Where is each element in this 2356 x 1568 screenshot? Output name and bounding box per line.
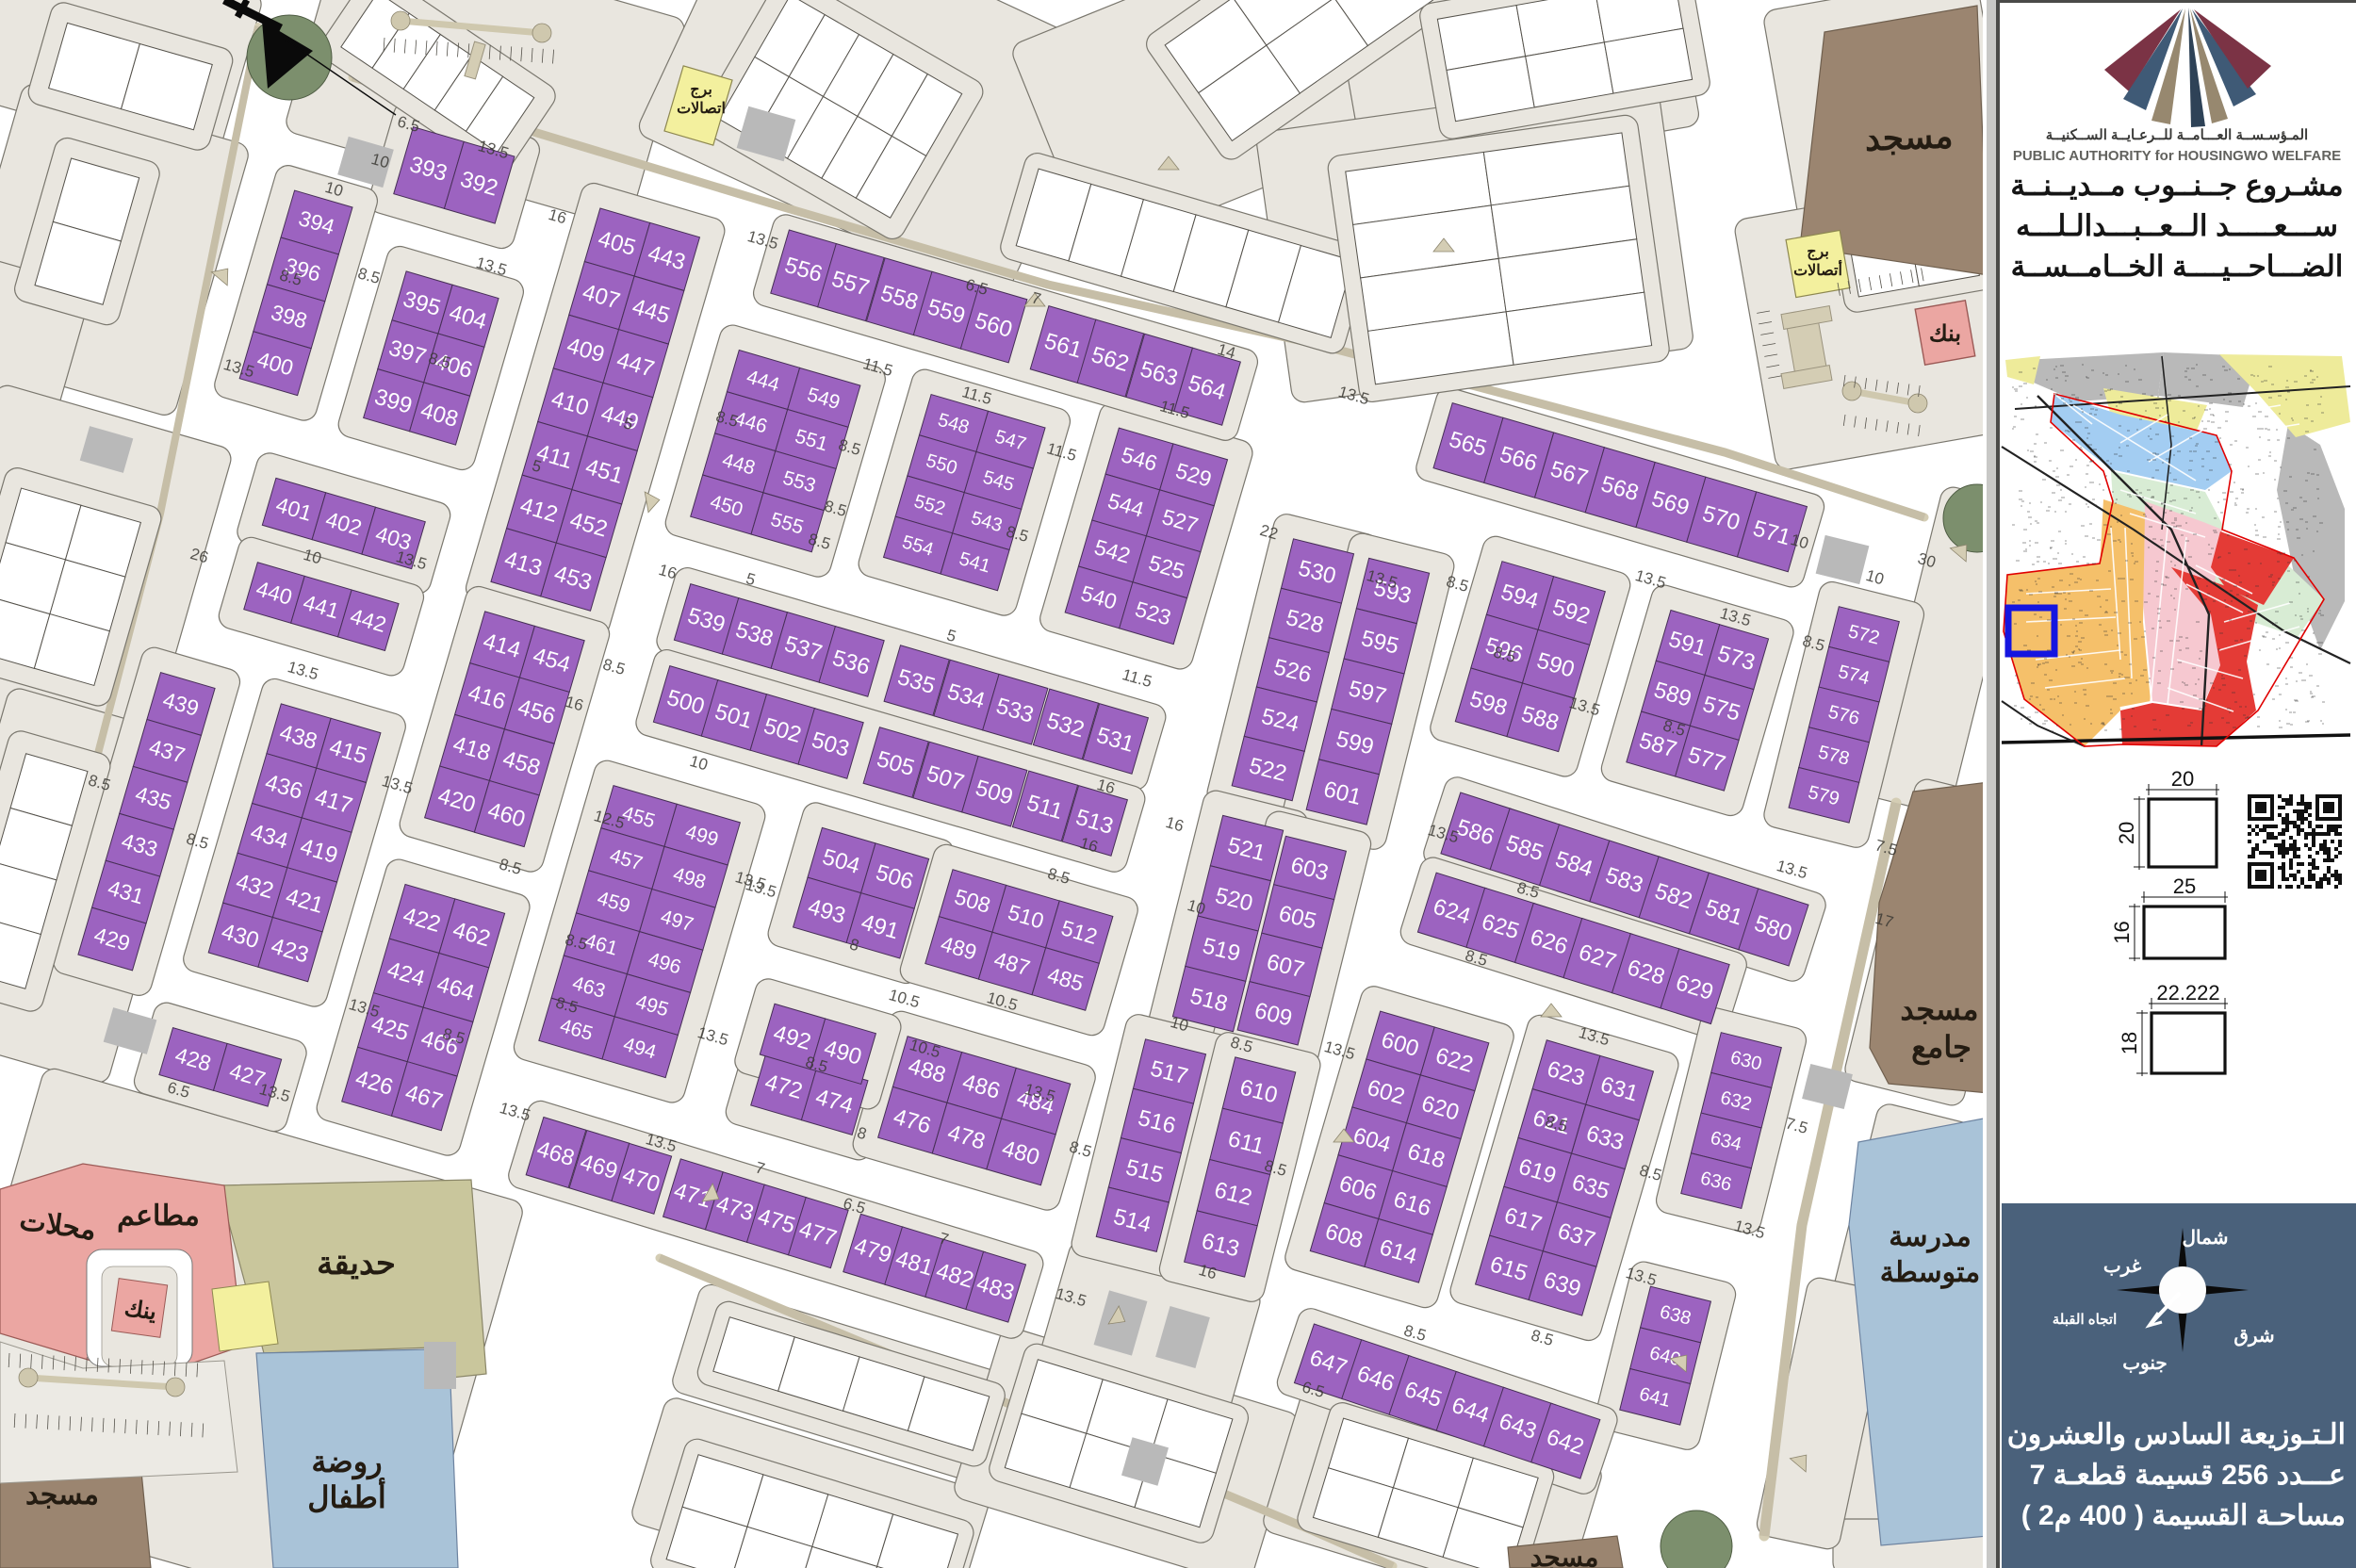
svg-text:16: 16 xyxy=(2110,921,2134,943)
svg-text:روضة: روضة xyxy=(311,1445,382,1480)
svg-text:اتصالات: اتصالات xyxy=(677,101,726,117)
svg-text:اتجاه القبلة: اتجاه القبلة xyxy=(2053,1312,2117,1328)
svg-text:20: 20 xyxy=(2115,822,2138,844)
svg-text:شمال: شمال xyxy=(2183,1228,2229,1249)
svg-text:مدرسة: مدرسة xyxy=(1889,1221,1972,1253)
svg-text:عـــدد 256 قسيمة قطعـة 7: عـــدد 256 قسيمة قطعـة 7 xyxy=(2030,1460,2346,1491)
svg-text:أتصالات: أتصالات xyxy=(1793,259,1842,279)
svg-text:غرب: غرب xyxy=(2103,1256,2142,1278)
svg-text:25: 25 xyxy=(2173,874,2196,898)
svg-text:20: 20 xyxy=(2171,767,2194,791)
svg-text:22.222: 22.222 xyxy=(2156,981,2219,1004)
svg-text:جامع: جامع xyxy=(1911,1030,1972,1066)
svg-text:المـؤسـســة العـــامــة للــرع: المـؤسـســة العـــامــة للــرعـايــة الس… xyxy=(2046,127,2308,143)
svg-text:برج: برج xyxy=(690,82,712,99)
svg-text:متوسطة: متوسطة xyxy=(1880,1257,1980,1289)
svg-text:مسجد: مسجد xyxy=(25,1479,99,1511)
svg-text:مسجد: مسجد xyxy=(1900,992,1978,1026)
svg-text:مسجد: مسجد xyxy=(1530,1543,1599,1568)
svg-text:ينك: ينك xyxy=(123,1296,158,1326)
svg-text:مساحـة القسيمة ( 400 م2 ): مساحـة القسيمة ( 400 م2 ) xyxy=(2021,1500,2346,1532)
svg-text:PUBLIC AUTHORITY for HOUSINGWO: PUBLIC AUTHORITY for HOUSINGWO WELFARE xyxy=(2013,148,2341,164)
svg-text:حديقة: حديقة xyxy=(317,1246,396,1282)
svg-text:شرق: شرق xyxy=(2233,1326,2274,1347)
svg-text:ســـعـــــد الــعــبـــدالـلــ: ســـعـــــد الــعــبـــدالـلـــه xyxy=(2016,209,2338,242)
svg-text:الـتـوزيعة السادس والعشرون: الـتـوزيعة السادس والعشرون xyxy=(2007,1419,2346,1451)
svg-text:أطفال: أطفال xyxy=(307,1477,386,1514)
svg-text:بنك: بنك xyxy=(1929,321,1961,347)
svg-text:18: 18 xyxy=(2118,1032,2141,1054)
svg-text:جنوب: جنوب xyxy=(2122,1353,2168,1375)
svg-text:الضـــاحــيــــة الخــامــســة: الضـــاحــيــــة الخــامــســة xyxy=(2011,250,2344,283)
svg-text:مشـروع جــنــوب مــديــنــة: مشـروع جــنــوب مــديــنــة xyxy=(2010,169,2343,204)
svg-text:مسجد: مسجد xyxy=(1864,116,1954,157)
svg-text:برج: برج xyxy=(1807,244,1829,261)
svg-text:مطاعم: مطاعم xyxy=(117,1200,200,1233)
